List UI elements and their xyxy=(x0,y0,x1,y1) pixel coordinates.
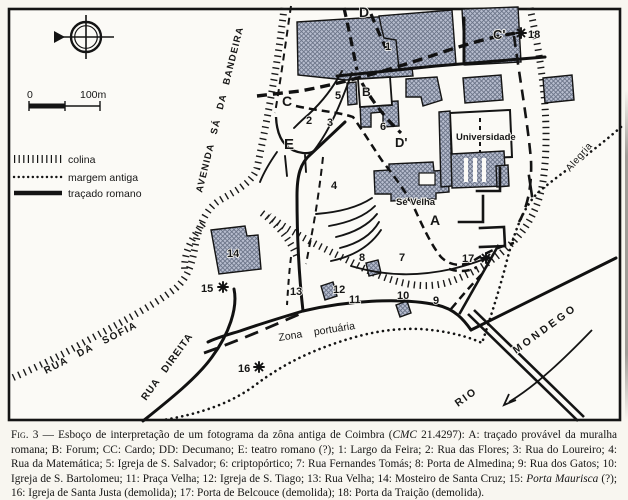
letter-C-cardo: C xyxy=(282,93,292,109)
num-7-rua-fernandes-tomas: 7 xyxy=(399,252,405,264)
num-11-praca-velha: 11 xyxy=(349,294,361,306)
universidade-slit xyxy=(482,158,486,182)
letter-E-teatro: E xyxy=(284,136,294,153)
place-label-se-velha: Sé Velha xyxy=(396,197,436,208)
se-velha-courtyard xyxy=(419,173,435,185)
universidade-southeast-step xyxy=(496,165,509,187)
legend-margem-label: margem antiga xyxy=(68,172,138,184)
letter-C-prime: C' xyxy=(493,27,505,42)
num-13-rua-velha: 13 xyxy=(290,286,302,298)
universidade-slit xyxy=(473,158,477,182)
caption-porta-maurisca: Porta Maurisca xyxy=(526,473,598,485)
num-16-igreja-santa-justa: 16 xyxy=(238,363,250,375)
num-4-rua-da-matematica: 4 xyxy=(331,180,338,192)
scanned-figure-page: 0 100m colina margem antiga traçado roma… xyxy=(0,0,628,500)
star-marker-15 xyxy=(218,282,228,292)
building-porta-almedina-8 xyxy=(366,260,381,276)
building-row2-mid xyxy=(463,75,503,103)
coimbra-map: 0 100m colina margem antiga traçado roma… xyxy=(0,0,628,426)
num-2-rua-das-flores: 2 xyxy=(306,115,312,127)
caption-cmc-ref: CMC xyxy=(392,429,416,441)
scale-max-label: 100m xyxy=(80,89,107,101)
caption-dash: — xyxy=(38,429,58,441)
caption-fig-number: Fig. 3 xyxy=(11,429,38,441)
num-8-porta-almedina: 8 xyxy=(359,252,365,264)
building-row2-east xyxy=(543,75,574,103)
universidade-slit xyxy=(464,158,468,182)
caption-body: Esboço de interpretação de um fotograma … xyxy=(58,429,392,441)
letter-D-decumano: D xyxy=(359,4,369,20)
scale-zero-label: 0 xyxy=(27,89,33,101)
num-12-igreja-s-tiago: 12 xyxy=(333,284,345,296)
num-14-mosteiro-santa-cruz: 14 xyxy=(227,248,240,260)
legend-tracado-label: traçado romano xyxy=(68,188,142,200)
num-1-largo-da-feira: 1 xyxy=(385,41,391,53)
figure-caption: Fig. 3 — Esboço de interpretação de um f… xyxy=(0,426,628,500)
star-marker-18 xyxy=(516,28,526,38)
num-18-porta-traicao: 18 xyxy=(528,29,540,41)
star-marker-17 xyxy=(481,253,491,263)
place-label-universidade: Universidade xyxy=(456,132,516,143)
num-15-porta-maurisca: 15 xyxy=(201,283,213,295)
letter-A-muralha: A xyxy=(430,212,440,228)
letter-B-forum: B xyxy=(362,85,371,99)
num-9-rua-dos-gatos: 9 xyxy=(433,295,439,307)
star-marker-16 xyxy=(254,362,264,372)
building-forum-small xyxy=(347,82,357,105)
legend-colina-label: colina xyxy=(68,154,96,166)
num-3-rua-do-loureiro: 3 xyxy=(327,117,333,129)
num-5-igreja-s-salvador: 5 xyxy=(335,90,341,102)
num-10-igreja-s-bartolomeu: 10 xyxy=(397,290,409,302)
building-block-northeast xyxy=(462,7,521,65)
num-17-porta-belcouce: 17 xyxy=(462,253,474,265)
theatre-radial-line xyxy=(305,155,306,172)
universidade-west-wing xyxy=(439,111,452,187)
letter-D-prime: D' xyxy=(395,135,407,150)
num-6-criptoportico: 6 xyxy=(380,121,386,133)
